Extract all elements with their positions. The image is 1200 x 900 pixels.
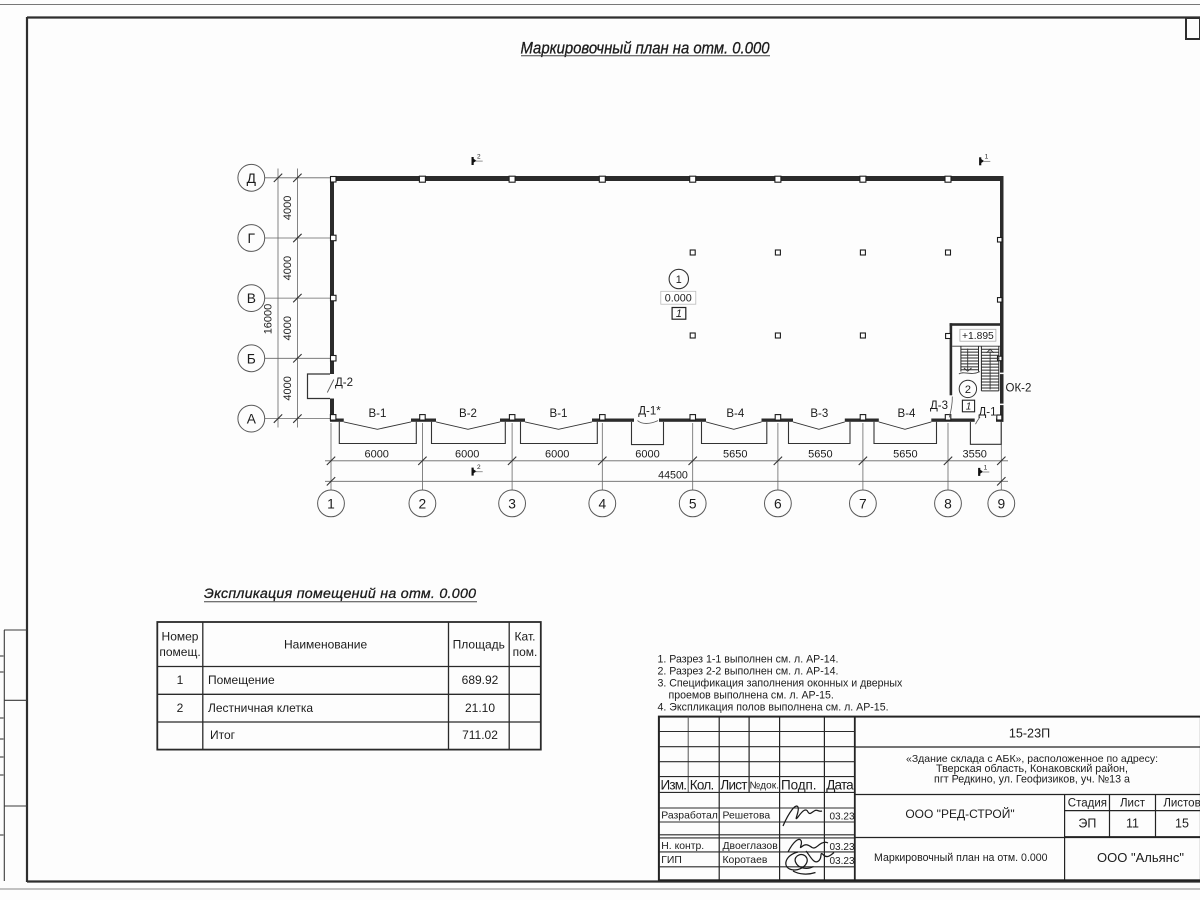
svg-text:Маркировочный план на отм. 0.0: Маркировочный план на отм. 0.000 — [521, 39, 770, 57]
svg-text:Б: Б — [247, 351, 256, 366]
svg-text:Листов: Листов — [1163, 797, 1200, 809]
svg-text:ООО "РЕД-СТРОЙ": ООО "РЕД-СТРОЙ" — [905, 806, 1014, 821]
svg-text:Экспликация помещений на отм.: Экспликация помещений на отм. 0.000 — [204, 586, 476, 602]
svg-text:3. Спецификация заполнения око: 3. Спецификация заполнения оконных и две… — [658, 677, 904, 689]
svg-text:689.92: 689.92 — [462, 673, 499, 687]
svg-text:ГИП: ГИП — [661, 855, 682, 866]
svg-text:Стадия: Стадия — [1068, 797, 1107, 809]
svg-text:1: 1 — [984, 464, 988, 471]
svg-text:8: 8 — [944, 496, 952, 511]
svg-text:помещ.: помещ. — [159, 645, 200, 659]
svg-text:В-3: В-3 — [810, 408, 828, 420]
svg-text:1: 1 — [676, 308, 682, 320]
svg-text:А: А — [247, 412, 257, 427]
svg-text:2: 2 — [177, 701, 184, 715]
svg-text:4. Экспликация полов выполнена: 4. Экспликация полов выполнена см. л. АР… — [658, 701, 889, 713]
svg-text:4000: 4000 — [282, 376, 294, 400]
svg-text:15: 15 — [1175, 817, 1189, 831]
svg-text:2: 2 — [419, 496, 427, 511]
svg-text:11: 11 — [1126, 817, 1139, 831]
svg-text:4000: 4000 — [282, 196, 294, 220]
svg-text:4000: 4000 — [282, 316, 294, 340]
svg-text:Маркировочный план на отм. 0.0: Маркировочный план на отм. 0.000 — [874, 852, 1048, 864]
svg-text:03.23: 03.23 — [830, 856, 855, 867]
svg-text:1: 1 — [966, 402, 972, 413]
svg-text:пом.: пом. — [513, 645, 538, 659]
svg-text:Наименование: Наименование — [284, 638, 368, 652]
svg-text:2: 2 — [477, 153, 481, 160]
svg-text:0.000: 0.000 — [665, 292, 692, 304]
svg-text:3: 3 — [508, 496, 516, 511]
svg-text:Разработал: Разработал — [661, 810, 718, 822]
svg-text:Кол.: Кол. — [690, 777, 715, 792]
svg-text:3550: 3550 — [962, 449, 986, 461]
svg-text:Помещение: Помещение — [208, 673, 275, 687]
svg-text:6000: 6000 — [635, 449, 659, 461]
svg-text:№док.: №док. — [750, 780, 780, 791]
svg-text:Итог: Итог — [210, 728, 236, 742]
svg-text:5650: 5650 — [808, 449, 832, 461]
svg-text:Лестничная клетка: Лестничная клетка — [208, 701, 313, 715]
svg-text:Д-1*: Д-1* — [638, 405, 661, 417]
svg-text:9: 9 — [997, 496, 1005, 511]
svg-text:1: 1 — [985, 154, 989, 161]
svg-text:+1.895: +1.895 — [962, 331, 994, 342]
svg-text:ОК-2: ОК-2 — [1006, 383, 1032, 395]
svg-text:1: 1 — [676, 274, 682, 286]
svg-text:1: 1 — [327, 496, 335, 511]
svg-text:03.23: 03.23 — [830, 812, 855, 823]
svg-text:Кат.: Кат. — [515, 630, 536, 644]
svg-text:проемов выполнена см. л. АР-15: проемов выполнена см. л. АР-15. — [669, 689, 834, 701]
svg-text:Н. контр.: Н. контр. — [661, 841, 704, 852]
svg-text:44500: 44500 — [658, 470, 688, 482]
svg-text:4: 4 — [598, 496, 606, 511]
svg-text:5: 5 — [689, 496, 697, 511]
svg-text:7: 7 — [859, 496, 867, 511]
svg-text:Д: Д — [247, 171, 257, 186]
svg-text:Решетова: Решетова — [723, 811, 771, 822]
svg-text:Г: Г — [248, 231, 256, 246]
svg-text:6000: 6000 — [545, 449, 569, 461]
svg-text:1: 1 — [177, 673, 184, 687]
svg-text:Д-3: Д-3 — [930, 400, 948, 412]
svg-text:Подп.: Подп. — [781, 777, 817, 792]
svg-text:5650: 5650 — [893, 449, 917, 461]
svg-text:711.02: 711.02 — [462, 728, 498, 742]
svg-text:В-1: В-1 — [368, 408, 386, 420]
svg-text:03.23: 03.23 — [830, 842, 855, 853]
svg-text:Дата: Дата — [826, 777, 854, 792]
svg-text:15-23П: 15-23П — [1009, 726, 1050, 740]
svg-text:4000: 4000 — [282, 256, 294, 280]
svg-text:Коротаев: Коротаев — [723, 855, 768, 866]
svg-text:Изм.: Изм. — [661, 777, 688, 792]
svg-text:ООО "Альянс": ООО "Альянс" — [1097, 850, 1184, 865]
svg-text:6000: 6000 — [364, 449, 388, 461]
svg-text:пгт Редкино, ул. Геофизиков, у: пгт Редкино, ул. Геофизиков, уч. №13 а — [934, 774, 1130, 786]
svg-text:Лист: Лист — [720, 777, 747, 792]
svg-text:6000: 6000 — [455, 449, 479, 461]
svg-text:5650: 5650 — [723, 449, 747, 461]
svg-text:В-1: В-1 — [550, 408, 568, 420]
svg-text:21.10: 21.10 — [465, 701, 495, 715]
svg-text:Д-2: Д-2 — [335, 377, 353, 389]
svg-text:ЭП: ЭП — [1078, 817, 1096, 831]
svg-text:16000: 16000 — [262, 304, 274, 335]
svg-text:Двоеглазов: Двоеглазов — [723, 841, 779, 852]
svg-text:2. Разрез 2-2 выполнен см. л.: 2. Разрез 2-2 выполнен см. л. АР-14. — [658, 665, 839, 677]
svg-text:2: 2 — [477, 464, 481, 471]
svg-text:В-4: В-4 — [726, 408, 745, 420]
svg-text:Номер: Номер — [162, 630, 199, 644]
svg-text:2: 2 — [965, 384, 971, 396]
svg-text:Площадь: Площадь — [453, 638, 505, 652]
svg-text:1. Разрез 1-1 выполнен см. л.: 1. Разрез 1-1 выполнен см. л. АР-14. — [658, 653, 839, 665]
svg-text:Д-1: Д-1 — [978, 406, 996, 418]
svg-text:В: В — [247, 291, 256, 306]
svg-text:Лист: Лист — [1120, 797, 1146, 809]
svg-text:6: 6 — [774, 496, 782, 511]
svg-text:В-2: В-2 — [459, 408, 477, 420]
svg-text:В-4: В-4 — [898, 408, 917, 420]
